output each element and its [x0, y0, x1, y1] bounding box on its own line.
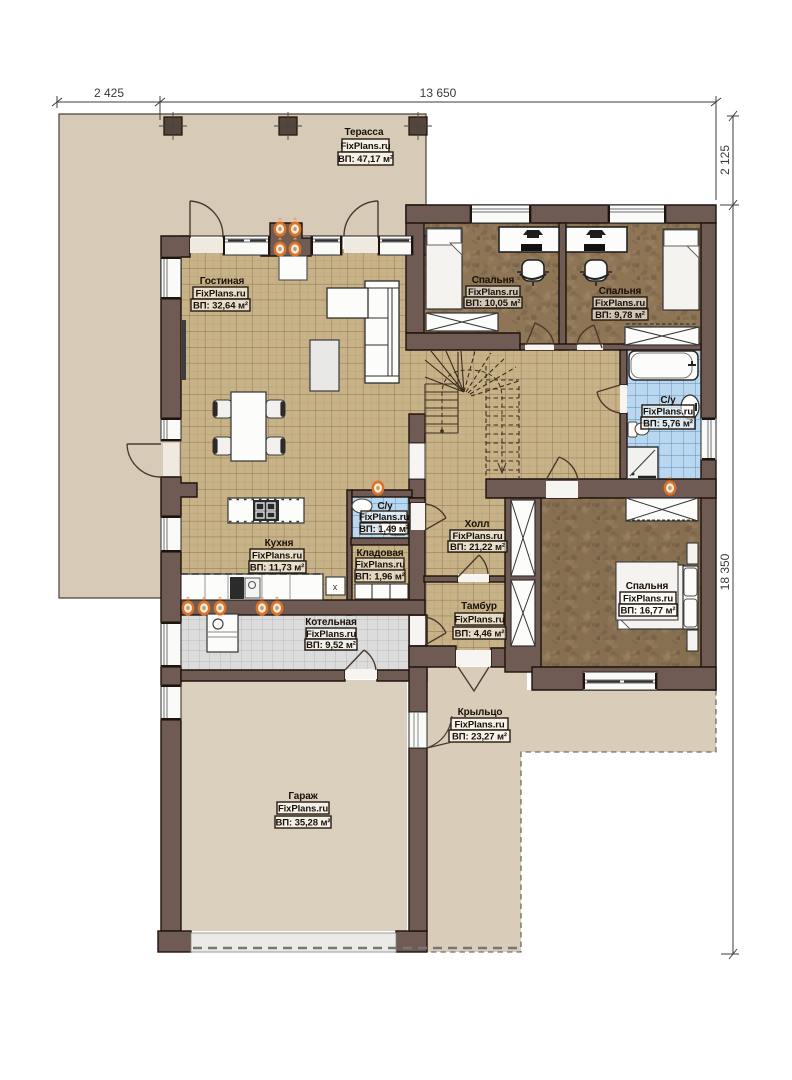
- svg-text:Холл: Холл: [465, 519, 490, 530]
- svg-text:ВП: 16,77 м²: ВП: 16,77 м²: [621, 606, 676, 617]
- svg-text:Спальня: Спальня: [626, 581, 669, 592]
- svg-text:ВП: 11,73 м²: ВП: 11,73 м²: [250, 563, 304, 574]
- svg-text:ВП: 5,76 м²: ВП: 5,76 м²: [643, 419, 693, 430]
- svg-text:FixPlans.ru: FixPlans.ru: [355, 560, 405, 571]
- svg-text:FixPlans.ru: FixPlans.ru: [643, 407, 693, 418]
- svg-text:Котельная: Котельная: [305, 617, 357, 628]
- svg-text:13 650: 13 650: [420, 86, 457, 100]
- svg-text:ВП: 4,46 м²: ВП: 4,46 м²: [455, 629, 505, 640]
- svg-text:Спальня: Спальня: [599, 286, 642, 297]
- svg-text:FixPlans.ru: FixPlans.ru: [595, 298, 645, 309]
- svg-text:ВП: 23,27 м²: ВП: 23,27 м²: [452, 732, 507, 743]
- svg-text:FixPlans.ru: FixPlans.ru: [454, 720, 504, 731]
- svg-text:ВП: 1,49 м²: ВП: 1,49 м²: [359, 524, 409, 535]
- svg-text:FixPlans.ru: FixPlans.ru: [359, 512, 409, 523]
- svg-text:2 425: 2 425: [94, 86, 124, 100]
- svg-text:Кухня: Кухня: [265, 538, 294, 549]
- svg-text:FixPlans.ru: FixPlans.ru: [252, 551, 302, 562]
- svg-text:ВП: 35,28 м²: ВП: 35,28 м²: [276, 818, 331, 829]
- svg-text:ВП: 47,17 м²: ВП: 47,17 м²: [338, 154, 393, 165]
- svg-text:ВП: 21,22 м²: ВП: 21,22 м²: [450, 542, 505, 553]
- svg-text:Спальня: Спальня: [472, 275, 515, 286]
- svg-text:Крыльцо: Крыльцо: [458, 707, 503, 718]
- svg-text:ВП: 10,05 м²: ВП: 10,05 м²: [466, 298, 521, 309]
- svg-text:18 350: 18 350: [718, 553, 732, 590]
- svg-text:FixPlans.ru: FixPlans.ru: [195, 289, 245, 300]
- svg-text:Кладовая: Кладовая: [356, 548, 403, 559]
- svg-text:FixPlans.ru: FixPlans.ru: [454, 615, 504, 626]
- svg-text:ВП: 9,78 м²: ВП: 9,78 м²: [595, 310, 645, 321]
- svg-text:x: x: [333, 582, 338, 592]
- svg-text:Гостиная: Гостиная: [200, 276, 245, 287]
- svg-text:Гараж: Гараж: [288, 791, 318, 802]
- svg-text:ВП: 1,96 м²: ВП: 1,96 м²: [355, 572, 405, 583]
- svg-text:ВП: 9,52 м²: ВП: 9,52 м²: [306, 640, 356, 651]
- svg-text:Терасса: Терасса: [345, 127, 384, 138]
- svg-text:FixPlans.ru: FixPlans.ru: [623, 594, 673, 605]
- svg-text:ВП: 32,64 м²: ВП: 32,64 м²: [193, 301, 248, 312]
- svg-text:FixPlans.ru: FixPlans.ru: [278, 804, 328, 815]
- svg-text:FixPlans.ru: FixPlans.ru: [340, 141, 390, 152]
- svg-text:2 125: 2 125: [718, 145, 732, 175]
- svg-text:Тамбур: Тамбур: [461, 600, 497, 612]
